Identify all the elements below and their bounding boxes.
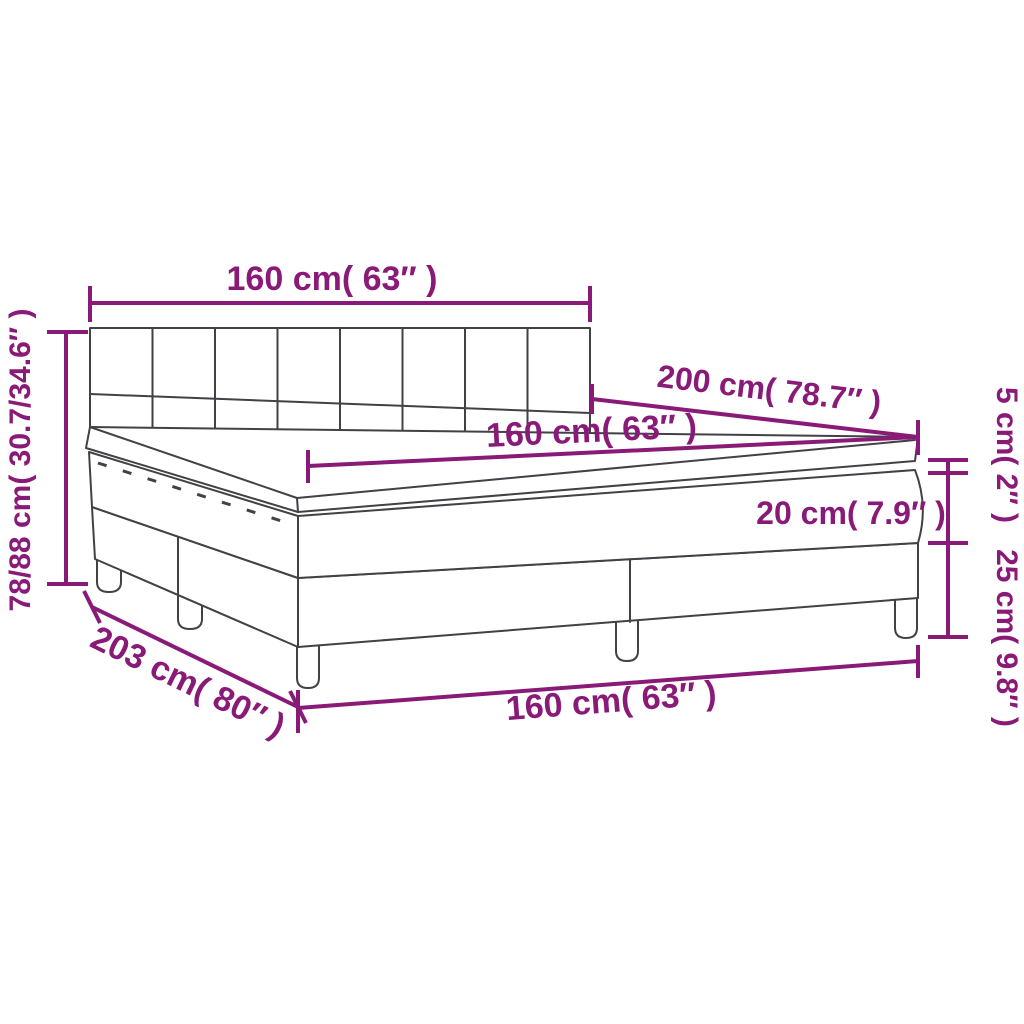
- dim-label-headboard-width: 160 cm( 63″ ): [227, 260, 438, 298]
- dim-label-mattress-height: 20 cm( 7.9″ ): [756, 495, 946, 531]
- bed-leg-front-mid: [616, 618, 638, 661]
- bed-diagram-canvas: 160 cm( 63″ ) 200 cm( 78.7″ ) 160 cm( 63…: [0, 0, 1024, 1024]
- dim-label-base-height: 25 cm( 9.8″ ): [990, 549, 1023, 727]
- dim-label-total-length: 203 cm( 80″ ): [85, 619, 291, 746]
- dim-base-width: 160 cm( 63″ ): [298, 645, 918, 733]
- dim-label-total-height: 78/88 cm( 30.7/34.6″ ): [4, 309, 37, 612]
- bed-dimension-diagram: 160 cm( 63″ ) 200 cm( 78.7″ ) 160 cm( 63…: [0, 0, 1024, 1024]
- dim-label-base-width: 160 cm( 63″ ): [505, 674, 718, 728]
- dim-label-topper-height: 5 cm( 2″ ): [990, 387, 1023, 523]
- bed-leg-front-left: [297, 643, 319, 688]
- bed-leg-front-right: [895, 597, 917, 638]
- dim-headboard-width: 160 cm( 63″ ): [90, 260, 590, 322]
- dim-total-height: 78/88 cm( 30.7/34.6″ ): [4, 309, 88, 612]
